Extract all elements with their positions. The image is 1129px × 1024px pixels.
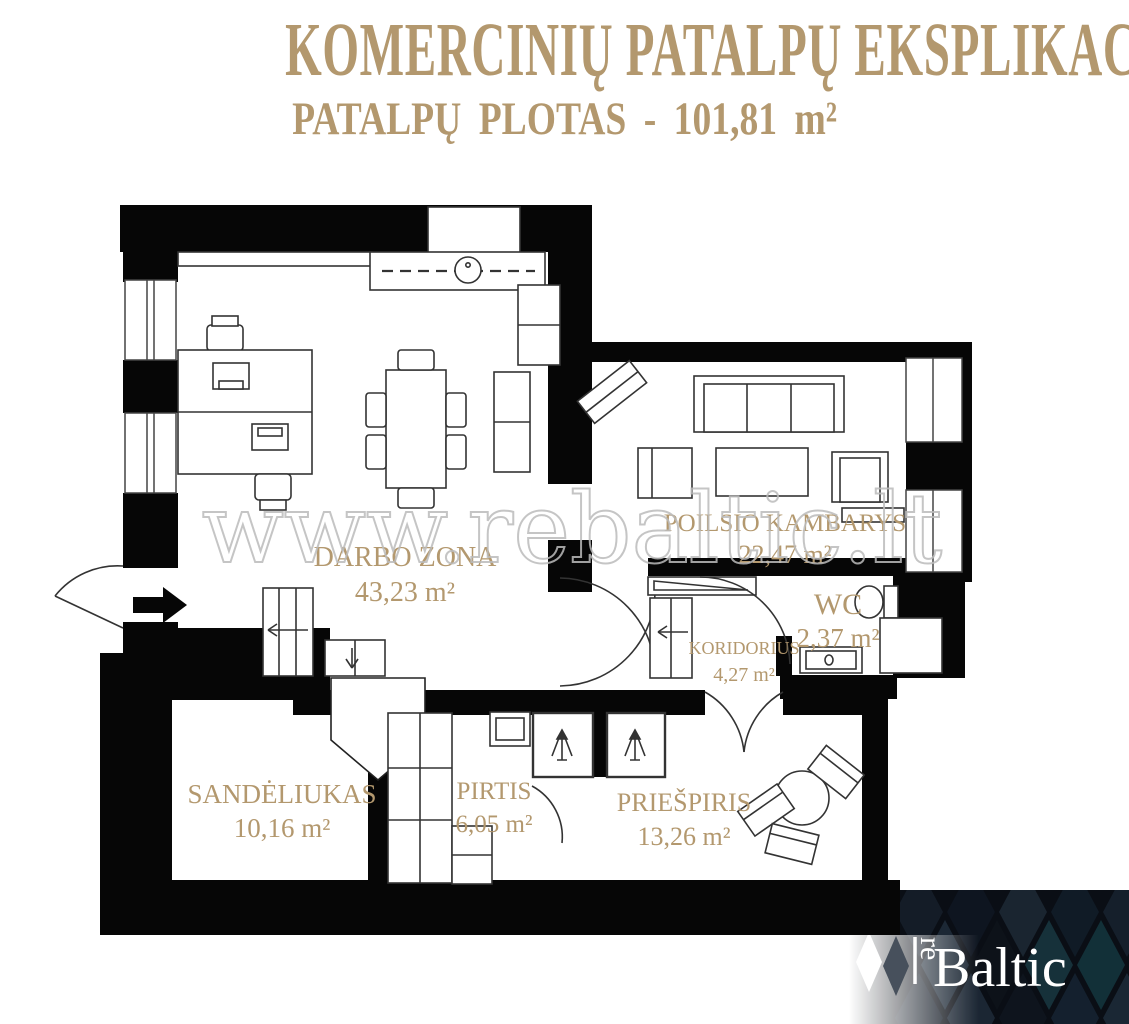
tall-cabinet-2 bbox=[494, 372, 530, 472]
rebaltic-logo: re Baltic bbox=[914, 937, 1067, 999]
entrance-arrow-icon bbox=[133, 587, 187, 623]
corridor-closet bbox=[650, 598, 692, 678]
room-label-pirtis: PIRTIS bbox=[457, 778, 532, 805]
room-label-sandeliukas: SANDĖLIUKAS bbox=[188, 779, 377, 809]
sauna-stove-icon bbox=[490, 712, 530, 746]
logo-text: Baltic bbox=[933, 937, 1067, 999]
sauna-door-arc bbox=[532, 786, 562, 843]
room-area-sandeliukas: 10,16 m² bbox=[234, 813, 331, 843]
entrance bbox=[55, 566, 187, 628]
duct-shaft bbox=[880, 618, 942, 673]
room-label-koridorius: KORIDORIUS bbox=[688, 638, 799, 658]
room-area-priespiris: 13,26 m² bbox=[637, 822, 730, 851]
window-left-2 bbox=[125, 413, 176, 493]
round-table-set bbox=[738, 745, 864, 864]
window-right-1 bbox=[906, 358, 962, 442]
toilet-icon bbox=[884, 586, 898, 618]
window-left-1 bbox=[125, 280, 176, 360]
room-label-wc: WC bbox=[814, 588, 862, 621]
shower-stall-2 bbox=[607, 713, 665, 777]
floor-plan-drawing: DARBO ZONA 43,23 m² POILSIO KAMBARYS 22,… bbox=[0, 0, 1129, 1024]
floor-plan-page: KOMERCINIŲ PATALPŲ EKSPLIKACIJA PATALPŲ … bbox=[0, 0, 1129, 1024]
rebaltic-logo-banner: re Baltic bbox=[849, 890, 1129, 1024]
shower-stall-1 bbox=[533, 713, 593, 777]
sofa bbox=[694, 376, 844, 432]
room-area-wc: 2,37 m² bbox=[796, 623, 879, 653]
watermark-text: www.rebaltic.lt bbox=[202, 473, 943, 585]
room-area-koridorius: 4,27 m² bbox=[713, 664, 775, 686]
room-area-pirtis: 6,05 m² bbox=[456, 811, 533, 838]
wardrobe-2 bbox=[325, 640, 385, 676]
room-label-priespiris: PRIEŠPIRIS bbox=[617, 788, 751, 817]
sink-icon bbox=[455, 257, 481, 283]
wardrobe-1 bbox=[263, 588, 313, 676]
tall-cabinet-1 bbox=[518, 285, 560, 365]
